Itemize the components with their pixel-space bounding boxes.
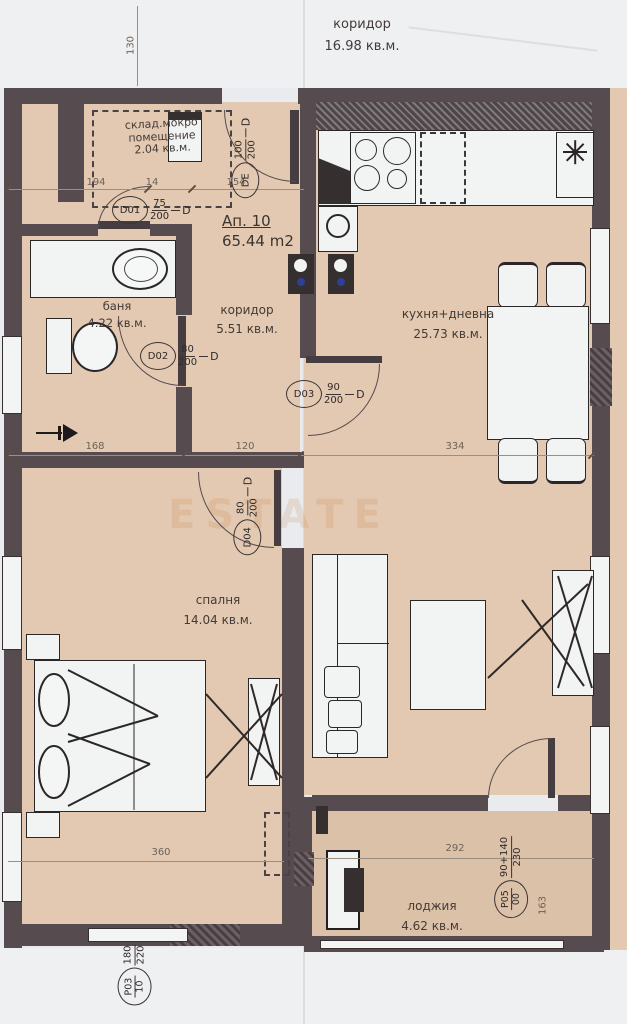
outer-corridor-label: коридор <box>333 18 391 33</box>
wall-right-exterior <box>592 88 610 950</box>
wall-bath-right-b <box>176 387 192 454</box>
wardrobe <box>552 570 594 696</box>
door-tag-d01: D01 75200 D <box>112 196 191 224</box>
outer-corridor-area: 16.98 кв.м. <box>325 40 400 55</box>
door-tag-leader <box>171 210 180 211</box>
neighbor-strip-floor <box>610 88 627 950</box>
door-tag-leader <box>247 487 248 496</box>
dim-130: 130 <box>126 36 137 55</box>
window-p03-bedroom <box>88 928 188 942</box>
wall-hall-kitchen <box>300 102 316 358</box>
wall-storage-left <box>58 96 84 202</box>
window-size: 90+140230 <box>499 836 523 878</box>
door-tag-d04: D04 80200 D <box>233 477 261 556</box>
dimension-line-bottom-right <box>308 858 594 859</box>
double-bed <box>34 660 206 812</box>
dim-163: 163 <box>538 896 549 915</box>
door-id-badge: D04 <box>233 519 261 555</box>
door-tag-d02: D02 80200 D <box>140 342 219 370</box>
dim-194: 194 <box>86 177 105 188</box>
paper-margin-top <box>0 0 627 88</box>
window-id-badge: P0500 <box>494 880 528 918</box>
door-id-badge: DE <box>231 162 259 198</box>
dining-chair <box>546 438 586 484</box>
dim-292: 292 <box>445 843 464 854</box>
dim-334: 334 <box>445 441 464 452</box>
apartment-number: Ап. 10 <box>222 211 294 231</box>
bath-label: баня <box>103 300 132 313</box>
wall-center-b <box>282 548 304 797</box>
door-tag-leader <box>199 356 208 357</box>
plumbing-shaft-right <box>328 254 354 294</box>
door-tag-leader <box>245 128 246 137</box>
window-size: 180220 <box>123 944 147 965</box>
door-tag-d03: D03 90200 D <box>286 380 365 408</box>
sofa-cushion <box>324 666 360 698</box>
nightstand-top <box>26 634 60 660</box>
door-tag-leader <box>345 394 354 395</box>
door-size: 80200 <box>235 498 259 517</box>
loggia-area: 4.62 кв.м. <box>401 920 463 934</box>
window-id-badge: P0310 <box>118 968 152 1006</box>
loggia-pipe <box>316 806 328 834</box>
wall-right-hatch <box>590 348 612 406</box>
dim-168: 168 <box>85 441 104 452</box>
wall-top-left <box>4 88 222 104</box>
coffee-table <box>410 600 486 710</box>
bath-sink-inner <box>124 256 158 282</box>
dim-360: 360 <box>151 847 170 858</box>
dishwasher-dashed <box>420 132 466 204</box>
loggia-dark-fixture <box>344 868 364 912</box>
window-loggia-parapet <box>320 940 564 949</box>
sofa-cushion <box>326 730 358 754</box>
dim-120: 120 <box>235 441 254 452</box>
window-left-bedroom <box>2 556 22 650</box>
wall-bath-top-a <box>4 224 98 236</box>
boiler-star-icon <box>563 140 587 164</box>
loggia-label: лоджия <box>407 900 456 914</box>
window-tag-p05: P0500 90+140230 <box>494 836 528 918</box>
kitchen-label: кухня+дневна <box>402 308 494 322</box>
door-size: 100200 <box>233 139 257 160</box>
apartment-title: Ап. 10 65.44 m2 <box>222 211 294 252</box>
nightstand-bottom <box>26 812 60 838</box>
dimension-line-bottom-left <box>8 861 284 862</box>
dining-chair <box>498 262 538 308</box>
toilet-tank <box>46 318 72 374</box>
window-tag-p03: P0310 180220 <box>118 944 152 1005</box>
storage-room-label: склад.мокро помещение 2.04 кв.м. <box>125 116 200 158</box>
bedroom-label: спалня <box>196 594 241 608</box>
tv-unit <box>248 678 280 786</box>
bath-area: 4.22 кв.м. <box>88 317 147 330</box>
dimension-line-left-vertical <box>137 6 138 86</box>
dining-chair <box>546 262 586 308</box>
hall-label: коридор <box>220 304 273 318</box>
dining-table <box>487 306 589 440</box>
door-size: 90200 <box>324 382 343 406</box>
section-arrow-icon <box>36 424 82 442</box>
door-size: 80200 <box>178 344 197 368</box>
stove <box>350 132 416 204</box>
sofa-cushion <box>328 700 362 728</box>
door-id-badge: D01 <box>112 196 148 224</box>
window-left-bath <box>2 336 22 414</box>
window-left-bedroom2 <box>2 812 22 902</box>
dim-14: 14 <box>146 177 159 188</box>
door-tag-de: DE 100200 D <box>231 118 259 199</box>
door-id-badge: D02 <box>140 342 176 370</box>
bedroom-area: 14.04 кв.м. <box>183 614 252 628</box>
door-id-badge: D03 <box>286 380 322 408</box>
hall-area: 5.51 кв.м. <box>216 323 278 337</box>
door-d03-leaf <box>306 356 382 363</box>
door-size: 75200 <box>150 198 169 222</box>
kitchen-sink-bowl <box>326 214 350 238</box>
window-right-kitchen <box>590 228 610 324</box>
plumbing-shaft-left <box>288 254 314 294</box>
apartment-area: 65.44 m2 <box>222 231 294 251</box>
dining-chair <box>498 438 538 484</box>
wall-loggia-b <box>558 795 594 811</box>
window-right-living2 <box>590 726 610 814</box>
kitchen-area: 25.73 кв.м. <box>413 328 482 342</box>
door-d04-leaf <box>274 470 281 546</box>
paper-margin-bottom <box>0 948 627 1024</box>
shaft-dashed-box <box>264 812 290 876</box>
dimension-line-top <box>8 189 304 190</box>
wall-loggia-a <box>312 795 488 811</box>
wall-kitchen-top-hatched <box>312 102 592 130</box>
floorplan-photo: коридор 16.98 кв.м. ESTATE <box>0 0 627 1024</box>
wall-bath-right-a <box>176 230 192 315</box>
